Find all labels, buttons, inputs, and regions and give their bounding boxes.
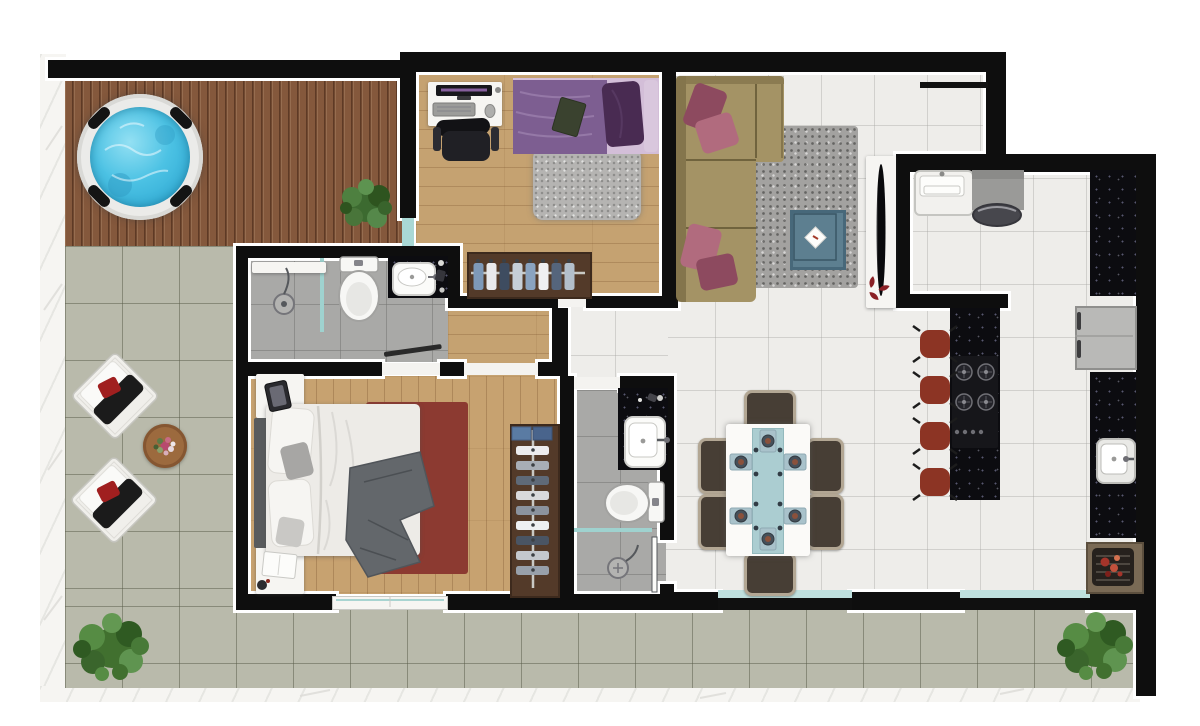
dining-chair-right-2 xyxy=(806,494,844,550)
bar-stool-4 xyxy=(920,468,950,496)
living-bottom-wall-c xyxy=(1088,592,1140,610)
master-top-wall-c xyxy=(538,362,564,376)
living-bottom-wall-b xyxy=(850,592,962,610)
bath1-door-threshold xyxy=(382,363,440,375)
bath1-shelf xyxy=(252,262,326,273)
floorplan-page xyxy=(0,0,1200,726)
bar-stool-2 xyxy=(920,376,950,404)
hottub-water xyxy=(90,107,190,207)
table-runner xyxy=(752,428,784,554)
kitchen-nook-wall xyxy=(896,294,1008,308)
main-top-wall xyxy=(400,52,1006,72)
deck-top-wall xyxy=(48,60,408,78)
slider-track-2 xyxy=(960,598,1090,610)
dining-chair-right-1 xyxy=(806,438,844,494)
right-outer-wall xyxy=(1136,154,1156,696)
floorplan-canvas xyxy=(0,0,1200,726)
tv-console xyxy=(866,156,896,308)
fridge xyxy=(1075,306,1137,370)
bed1-pillow xyxy=(601,80,644,147)
bath2-left-wall xyxy=(560,376,574,610)
desk xyxy=(428,82,502,126)
bath2-bottom-wall xyxy=(574,594,674,610)
sofa-chaise xyxy=(676,76,784,162)
bed1-edge-pillow xyxy=(644,80,658,152)
slider-glass-2 xyxy=(960,590,1090,598)
master-left-wall xyxy=(236,362,248,610)
upper-right-wall xyxy=(986,52,1006,164)
counter-top-right xyxy=(1090,170,1136,296)
bath2-sink xyxy=(624,416,666,468)
kitchen-island xyxy=(950,308,1000,500)
master-top-wall-b xyxy=(440,362,464,376)
left-sill xyxy=(40,54,66,702)
living-strip-floor xyxy=(562,302,668,378)
grill xyxy=(1092,548,1134,586)
bottom-sill xyxy=(40,686,1140,702)
living-bottom-wall-a xyxy=(662,592,720,610)
patio-left-floor xyxy=(65,246,237,608)
bedroom1-rug xyxy=(533,148,641,220)
deck-glass-door xyxy=(402,218,414,246)
master-closet xyxy=(510,424,560,598)
dining-chair-bottom xyxy=(744,552,796,596)
deck-divider-wall xyxy=(400,60,416,218)
kitchen-appliance xyxy=(972,170,1024,210)
upper-ledge xyxy=(920,82,988,88)
kitchen-left-wall xyxy=(896,154,910,308)
bath1-left-wall xyxy=(236,246,248,374)
bed2-mattress xyxy=(266,404,420,556)
bedroom1-right-wall xyxy=(662,52,676,304)
master-window xyxy=(332,596,448,610)
patio-side-table xyxy=(143,424,187,468)
bath2-shower-glass xyxy=(574,528,652,532)
outside-corner xyxy=(1006,40,1160,154)
bar-stool-3 xyxy=(920,422,950,450)
bedroom1-closet xyxy=(467,252,592,299)
kitchen-sink-unit xyxy=(914,170,974,216)
kitchen-sink-2 xyxy=(1096,438,1136,484)
patio-bottom-floor xyxy=(65,606,1136,688)
bath1-sink xyxy=(392,262,436,296)
bed1-duvet xyxy=(513,80,607,154)
master-door-threshold xyxy=(464,363,538,375)
master-bottom-wall-a xyxy=(236,594,336,610)
bar-stool-1 xyxy=(920,330,950,358)
slider-track-1 xyxy=(718,598,852,610)
bath2-door-threshold xyxy=(574,377,620,389)
coffee-table xyxy=(790,210,846,270)
